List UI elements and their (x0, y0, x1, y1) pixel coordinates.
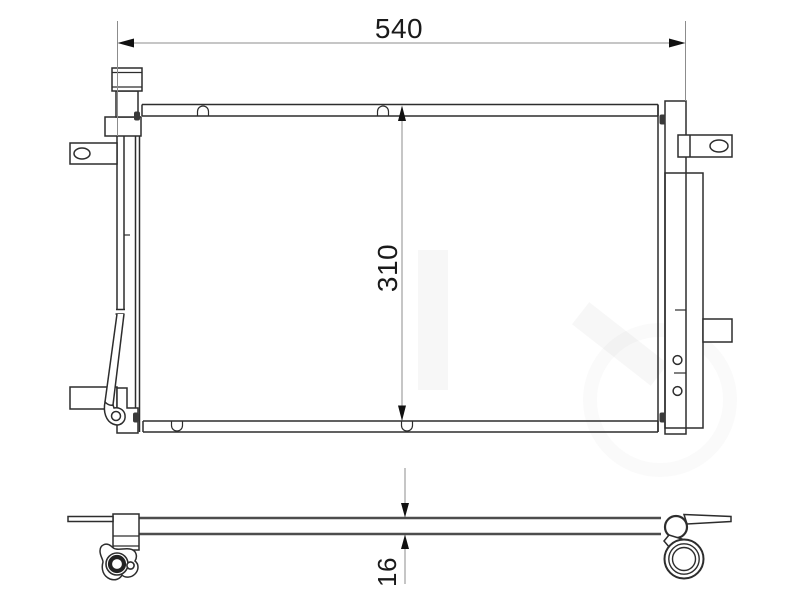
rail-clip (198, 106, 209, 116)
dim-width-label: 540 (375, 13, 423, 44)
arrowhead-right (669, 39, 686, 48)
rail-clip (172, 421, 183, 431)
mounting-tab-right (703, 319, 732, 342)
dimension-depth: 16 (372, 468, 409, 587)
flange-port-small (127, 562, 134, 569)
arrowhead-down (398, 406, 406, 422)
drier-end-rings (665, 540, 704, 579)
dim-depth-label: 16 (372, 557, 402, 587)
drawing-canvas: 540 310 16 (0, 0, 800, 600)
pipe-cap (112, 68, 142, 91)
condenser-technical-drawing: 540 310 16 (0, 0, 800, 600)
left-side-plate (136, 116, 140, 432)
left-pipe-assembly (104, 68, 142, 425)
mounting-bracket-top-left (70, 143, 117, 164)
mounting-bracket-top-right (678, 135, 732, 157)
arrowhead-up (398, 106, 406, 122)
left-fitting-block (113, 514, 139, 550)
right-rod (684, 515, 731, 525)
pipe-elbow-opening (112, 412, 121, 421)
arrowhead-left (118, 39, 135, 48)
dimension-annotations: 540 310 16 (118, 13, 686, 587)
receiver-drier (665, 173, 703, 428)
rail-clip (378, 106, 389, 116)
left-pipe-flange (100, 544, 138, 580)
dimension-height: 310 (372, 106, 406, 422)
right-end-profile (664, 515, 731, 579)
left-rod (68, 517, 113, 522)
arrowhead-up (401, 535, 409, 550)
flange-port-large (110, 557, 124, 571)
dim-height-label: 310 (372, 244, 403, 292)
pipe-body (117, 136, 124, 310)
core-bottom-rail (143, 421, 658, 432)
rail-clip (402, 421, 413, 431)
arrowhead-down (401, 503, 409, 518)
